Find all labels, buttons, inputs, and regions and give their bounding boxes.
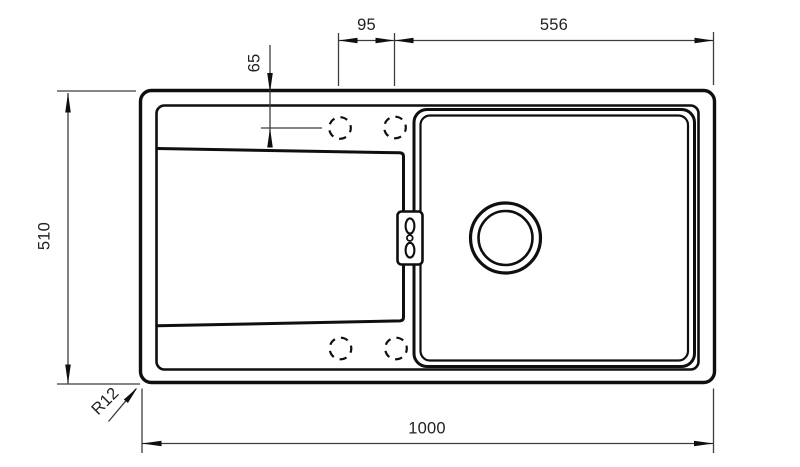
drain-inner-circle bbox=[479, 211, 533, 265]
arrow-95-right bbox=[376, 38, 395, 44]
arrowheads-group bbox=[65, 38, 713, 447]
sink-technical-drawing-page: 95 556 65 510 1000 R12 bbox=[0, 0, 800, 467]
sink-technical-drawing: 95 556 65 510 1000 R12 bbox=[0, 0, 800, 467]
drainboard-outline bbox=[158, 149, 404, 326]
arrow-65-bottom bbox=[267, 128, 273, 148]
bowl-outer-edge bbox=[414, 110, 695, 367]
dim-label-hole-offset: 65 bbox=[246, 54, 264, 73]
faucet-hole-top-right bbox=[384, 117, 406, 139]
dim-label-overall-width: 1000 bbox=[408, 420, 446, 438]
arrow-r12 bbox=[124, 388, 138, 404]
dim-label-hole-spacing: 95 bbox=[357, 16, 376, 34]
bowl-inner-edge bbox=[421, 116, 689, 361]
sink-outer-rim bbox=[141, 91, 715, 383]
arrow-1000-left bbox=[142, 441, 162, 447]
arrow-556-right bbox=[695, 38, 714, 44]
drain-outer-circle bbox=[471, 203, 541, 273]
dim-label-overall-depth: 510 bbox=[36, 222, 54, 250]
faucet-hole-top-left bbox=[329, 117, 351, 139]
arrow-95-left bbox=[339, 38, 358, 44]
dim-label-corner-radius: R12 bbox=[88, 384, 123, 419]
overflow-control-box-group bbox=[398, 212, 423, 265]
faucet-hole-bottom-left bbox=[330, 338, 352, 360]
sink-inner-tray-edge bbox=[157, 106, 699, 370]
arrow-510-bottom bbox=[65, 365, 71, 385]
dim-label-bowl-width: 556 bbox=[540, 16, 568, 34]
arrow-510-top bbox=[65, 93, 71, 113]
arrow-1000-right bbox=[694, 441, 714, 447]
object-lines-group bbox=[141, 91, 715, 383]
arrow-556-left bbox=[395, 38, 414, 44]
faucet-hole-bottom-right bbox=[385, 338, 407, 360]
dimension-text-group: 95 556 65 510 1000 R12 bbox=[36, 16, 569, 438]
